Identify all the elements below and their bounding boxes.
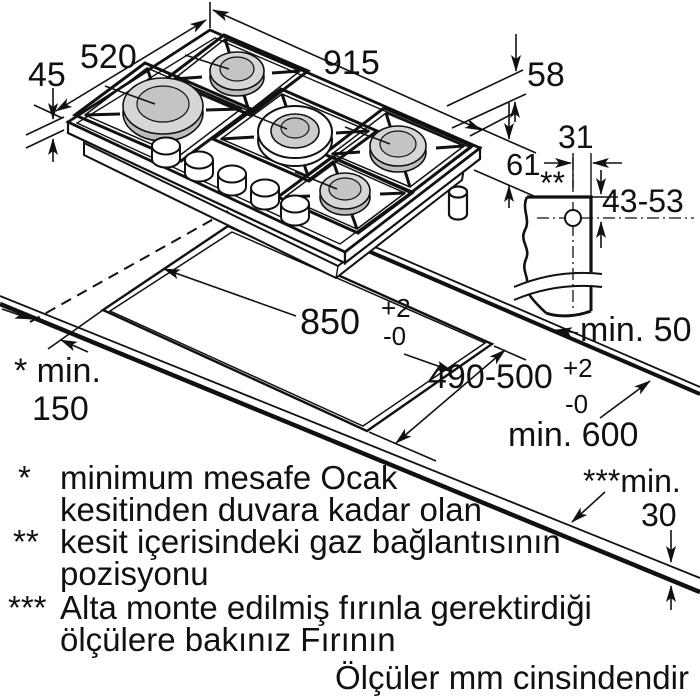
footnote-star2-mark: ** <box>13 523 39 560</box>
hob-installation-diagram: 45 520 915 58 61 31 ** 43-53 850 +2 -0 4… <box>0 0 700 700</box>
label-total-height: 61 <box>506 147 540 182</box>
knob-5 <box>281 196 309 226</box>
hob-foot <box>449 187 467 220</box>
label-side-clearance: * min. <box>14 352 101 390</box>
label-cutout-width: 850 <box>300 301 360 342</box>
label-counter-thickness-value: 30 <box>641 497 677 533</box>
label-cutout-width-minus: -0 <box>383 321 406 351</box>
label-counter-depth: min. 600 <box>508 416 638 454</box>
label-cutout-width-plus: +2 <box>381 293 411 323</box>
cutout-front-edge-extension <box>369 432 436 461</box>
footnote-star1-mark: * <box>18 459 31 496</box>
label-cutout-depth: 490-500 <box>428 358 553 396</box>
hob-projection-dashed-line <box>30 207 235 322</box>
footnote-star3-mark: *** <box>8 589 47 626</box>
label-depth: 520 <box>80 38 137 76</box>
label-side-clearance-value: 150 <box>32 390 89 428</box>
dimension-58 <box>447 34 526 128</box>
knob-3 <box>218 166 246 196</box>
dimension-45 <box>26 88 64 162</box>
section-piece <box>523 197 591 285</box>
label-gas-marker: ** <box>540 165 565 201</box>
label-cutout-depth-plus: +2 <box>563 353 593 383</box>
footnote-star2-line2: pozisyonu <box>60 555 209 592</box>
gas-inlet-point <box>565 210 581 226</box>
knob-4 <box>251 180 279 210</box>
label-counter-thickness: ***min. <box>583 463 681 499</box>
foot-top <box>449 187 467 198</box>
label-rear-clearance: min. 50 <box>580 311 692 349</box>
knob-1 <box>152 138 180 168</box>
label-width: 915 <box>323 44 380 82</box>
installation-diagram-page: 45 520 915 58 61 31 ** 43-53 850 +2 -0 4… <box>0 0 700 700</box>
label-below-top: 58 <box>527 56 565 94</box>
label-gas-offset: 31 <box>558 119 594 155</box>
footnote-star3-line2: ölçülere bakınız Fırının <box>60 621 396 658</box>
knob-2 <box>185 152 213 182</box>
units-note: Ölçüler mm cinsindendir <box>335 659 689 696</box>
cutout-inner-edge <box>110 232 485 426</box>
label-thickness: 45 <box>28 56 66 94</box>
label-cutout-depth-minus: -0 <box>565 389 588 419</box>
label-gas-depth-range: 43-53 <box>602 183 684 219</box>
